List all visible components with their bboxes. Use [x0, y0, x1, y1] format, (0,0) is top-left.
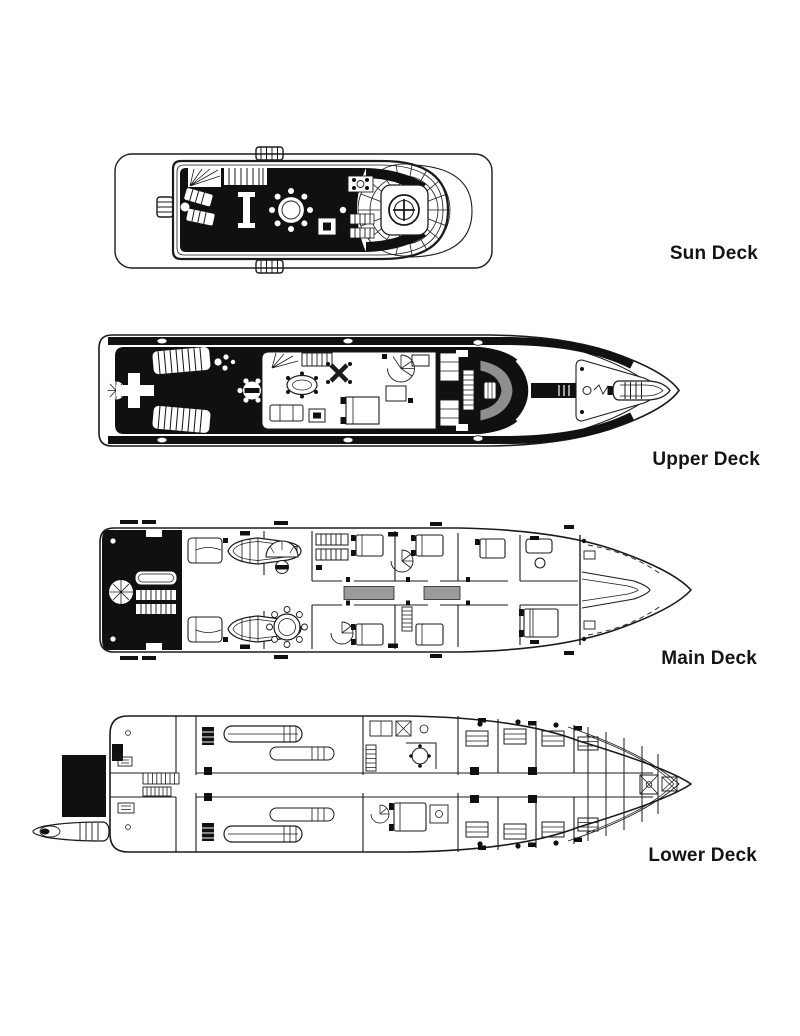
corridor-runner	[424, 587, 460, 600]
yacht-deck-plans: Sun Deck	[0, 0, 800, 1036]
main-deck-plan	[90, 515, 700, 665]
lower-deck-plan	[28, 705, 700, 860]
dining-table	[274, 614, 300, 640]
sun-lounger-pad	[224, 168, 267, 185]
upper-deck-label: Upper Deck	[652, 449, 760, 471]
dumb-waiter	[318, 218, 336, 235]
main-deck-label: Main Deck	[661, 648, 757, 670]
lower-deck-label: Lower Deck	[648, 845, 757, 867]
aft-table	[135, 571, 177, 585]
corridor-runner	[344, 587, 394, 600]
upper-deck-plan	[90, 328, 685, 453]
jacuzzi	[381, 185, 428, 235]
tender-boat	[608, 381, 671, 400]
sun-deck-label: Sun Deck	[670, 243, 758, 265]
stairs-fan	[188, 168, 221, 187]
swim-platform	[62, 755, 106, 817]
sun-deck-plan	[110, 145, 500, 275]
cocktail-table	[348, 176, 373, 192]
helm-seat	[484, 382, 496, 399]
